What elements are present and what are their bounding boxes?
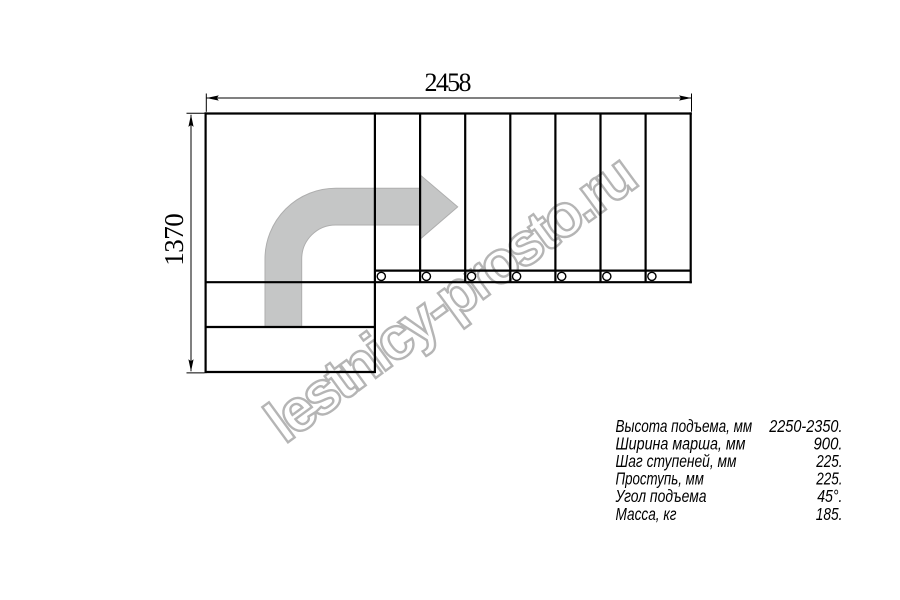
svg-text:Масса, кг: Масса, кг [616,504,677,524]
svg-text:2458: 2458 [425,68,472,97]
svg-text:1370: 1370 [159,213,189,266]
svg-text:185.: 185. [816,504,843,524]
